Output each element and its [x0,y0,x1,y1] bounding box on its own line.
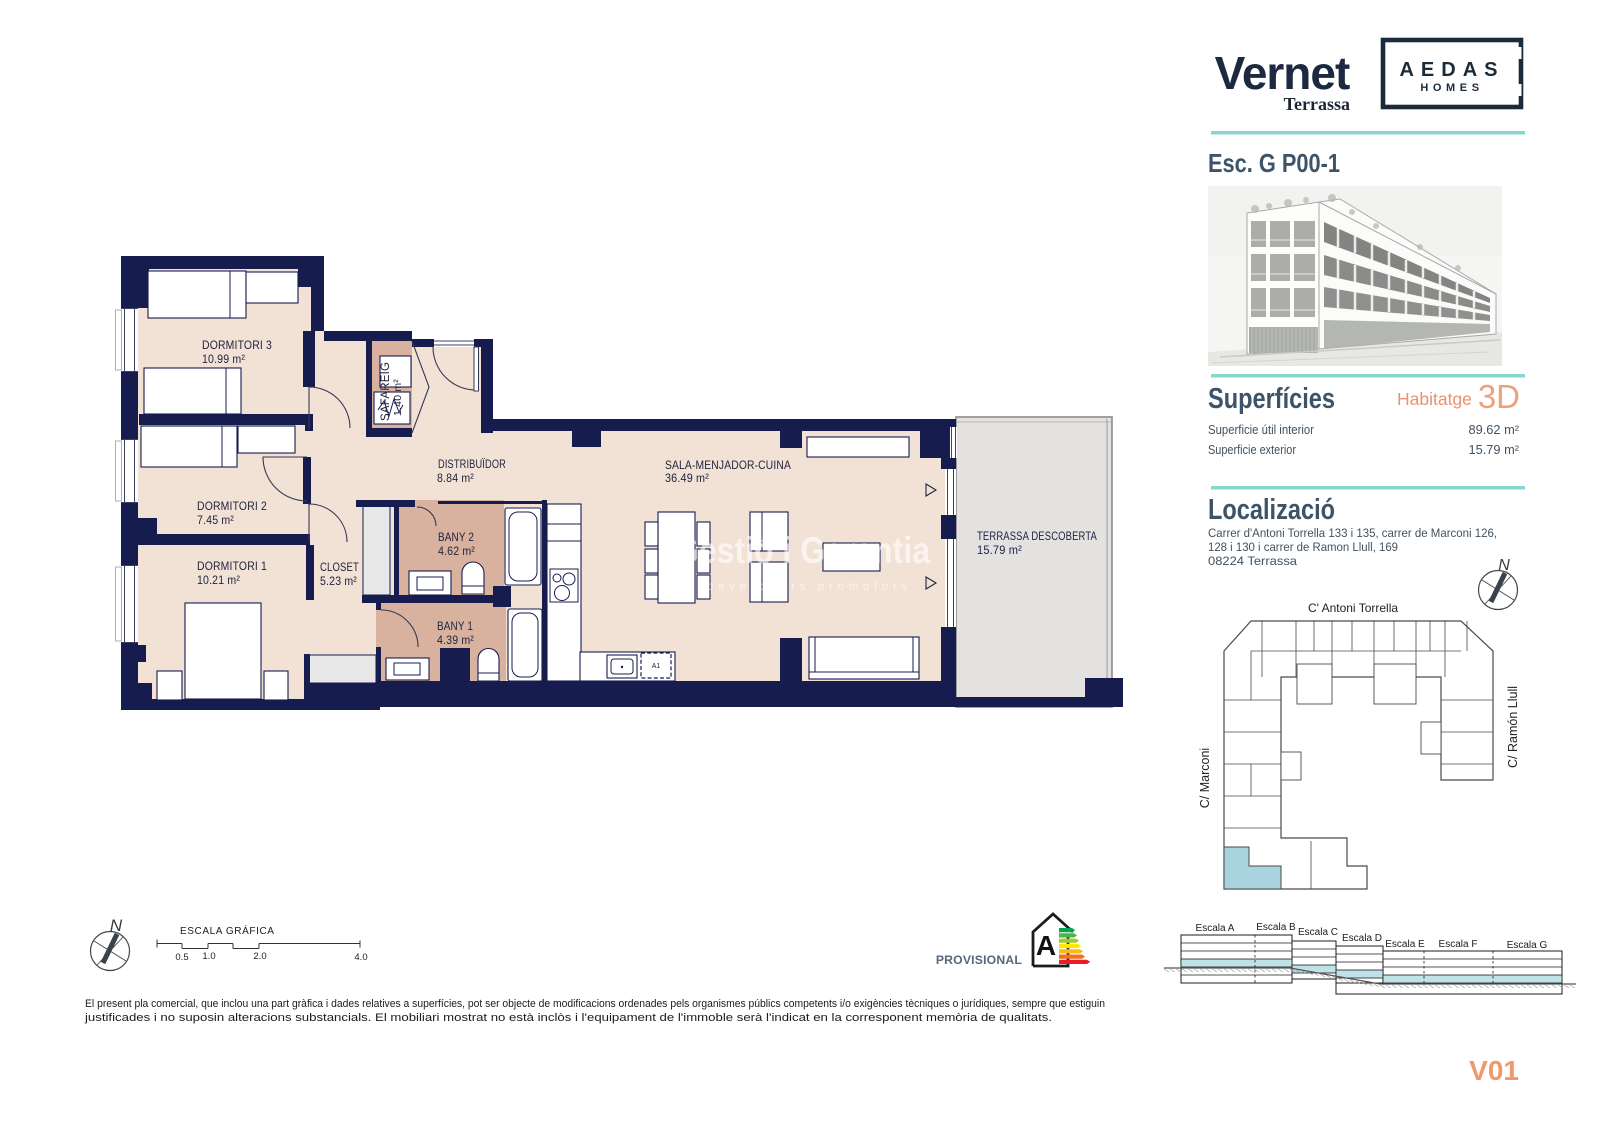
svg-text:128 i 130 i carrer de Ramon Ll: 128 i 130 i carrer de Ramon Llull, 169 [1208,540,1398,554]
svg-text:10.21 m²: 10.21 m² [197,573,240,587]
svg-text:Gestió i Garantia: Gestió i Garantia [674,530,930,571]
svg-text:A1: A1 [652,663,661,670]
svg-text:DORMITORI 3: DORMITORI 3 [202,338,272,352]
svg-text:5.23 m²: 5.23 m² [320,574,357,588]
svg-text:ESCALA GRÁFICA: ESCALA GRÁFICA [180,924,275,937]
svg-text:36.49 m²: 36.49 m² [665,471,709,485]
svg-text:Escala B: Escala B [1256,922,1296,933]
svg-text:1.40 m²: 1.40 m² [392,379,404,416]
svg-text:8.84 m²: 8.84 m² [437,471,474,485]
svg-text:Escala G: Escala G [1507,940,1548,951]
svg-text:A: A [1036,930,1056,961]
svg-text:PROVISIONAL: PROVISIONAL [936,953,1023,967]
svg-text:AEDAS: AEDAS [1399,59,1504,81]
svg-text:C/ Ramón Llull: C/ Ramón Llull [1506,686,1520,768]
svg-text:Escala A: Escala A [1196,923,1235,934]
svg-text:Escala E: Escala E [1385,939,1425,950]
svg-text:4.62 m²: 4.62 m² [438,544,475,558]
svg-text:Escala F: Escala F [1439,939,1478,950]
svg-text:08224 Terrassa: 08224 Terrassa [1208,554,1297,568]
svg-text:7.45 m²: 7.45 m² [197,513,234,527]
svg-text:Superficie útil interior: Superficie útil interior [1208,422,1315,437]
svg-text:3D: 3D [1478,378,1520,415]
svg-text:El present pla comercial, que: El present pla comercial, que inclou una… [85,998,1105,1010]
svg-text:Esc. G P00-1: Esc. G P00-1 [1208,148,1340,178]
svg-text:V01: V01 [1469,1055,1519,1086]
svg-text:N: N [110,916,123,935]
svg-text:Localizació: Localizació [1208,494,1335,526]
svg-text:Superficie exterior: Superficie exterior [1208,442,1297,457]
svg-text:C/ Marconi: C/ Marconi [1198,748,1212,808]
svg-text:developers promotors: developers promotors [707,579,912,593]
svg-text:SALA-MENJADOR-CUINA: SALA-MENJADOR-CUINA [665,458,791,472]
svg-text:0.5: 0.5 [175,952,188,963]
svg-text:Escala D: Escala D [1342,933,1382,944]
svg-text:4.0: 4.0 [354,952,367,963]
svg-text:SAFAREIG: SAFAREIG [380,362,392,421]
svg-text:DISTRIBUÏDOR: DISTRIBUÏDOR [438,457,506,471]
svg-text:15.79 m²: 15.79 m² [977,543,1022,557]
svg-text:89.62 m²: 89.62 m² [1468,422,1519,437]
svg-text:15.79 m²: 15.79 m² [1468,442,1519,457]
svg-text:Habitatge: Habitatge [1397,389,1472,409]
svg-text:4.39 m²: 4.39 m² [437,633,474,647]
svg-text:Vernet: Vernet [1215,47,1350,99]
svg-text:C' Antoni Torrella: C' Antoni Torrella [1308,601,1398,615]
svg-text:DORMITORI 1: DORMITORI 1 [197,559,267,573]
svg-text:2.0: 2.0 [253,951,266,962]
svg-text:justificades i no suposin alte: justificades i no suposin alteracions su… [84,1012,1052,1024]
svg-text:DORMITORI 2: DORMITORI 2 [197,499,267,513]
svg-text:TERRASSA DESCOBERTA: TERRASSA DESCOBERTA [977,529,1097,543]
svg-text:N: N [1498,557,1510,574]
svg-text:BANY 1: BANY 1 [437,619,473,633]
svg-text:Carrer d'Antoni Torrella 133 i: Carrer d'Antoni Torrella 133 i 135, carr… [1208,526,1497,540]
svg-text:Escala C: Escala C [1298,927,1338,938]
svg-text:HOMES: HOMES [1420,82,1483,94]
svg-text:10.99 m²: 10.99 m² [202,352,245,366]
svg-text:Terrassa: Terrassa [1284,94,1350,114]
svg-text:CLOSET: CLOSET [320,560,359,574]
svg-text:BANY 2: BANY 2 [438,530,474,544]
svg-text:1.0: 1.0 [202,951,215,962]
svg-text:Superfícies: Superfícies [1208,383,1335,415]
